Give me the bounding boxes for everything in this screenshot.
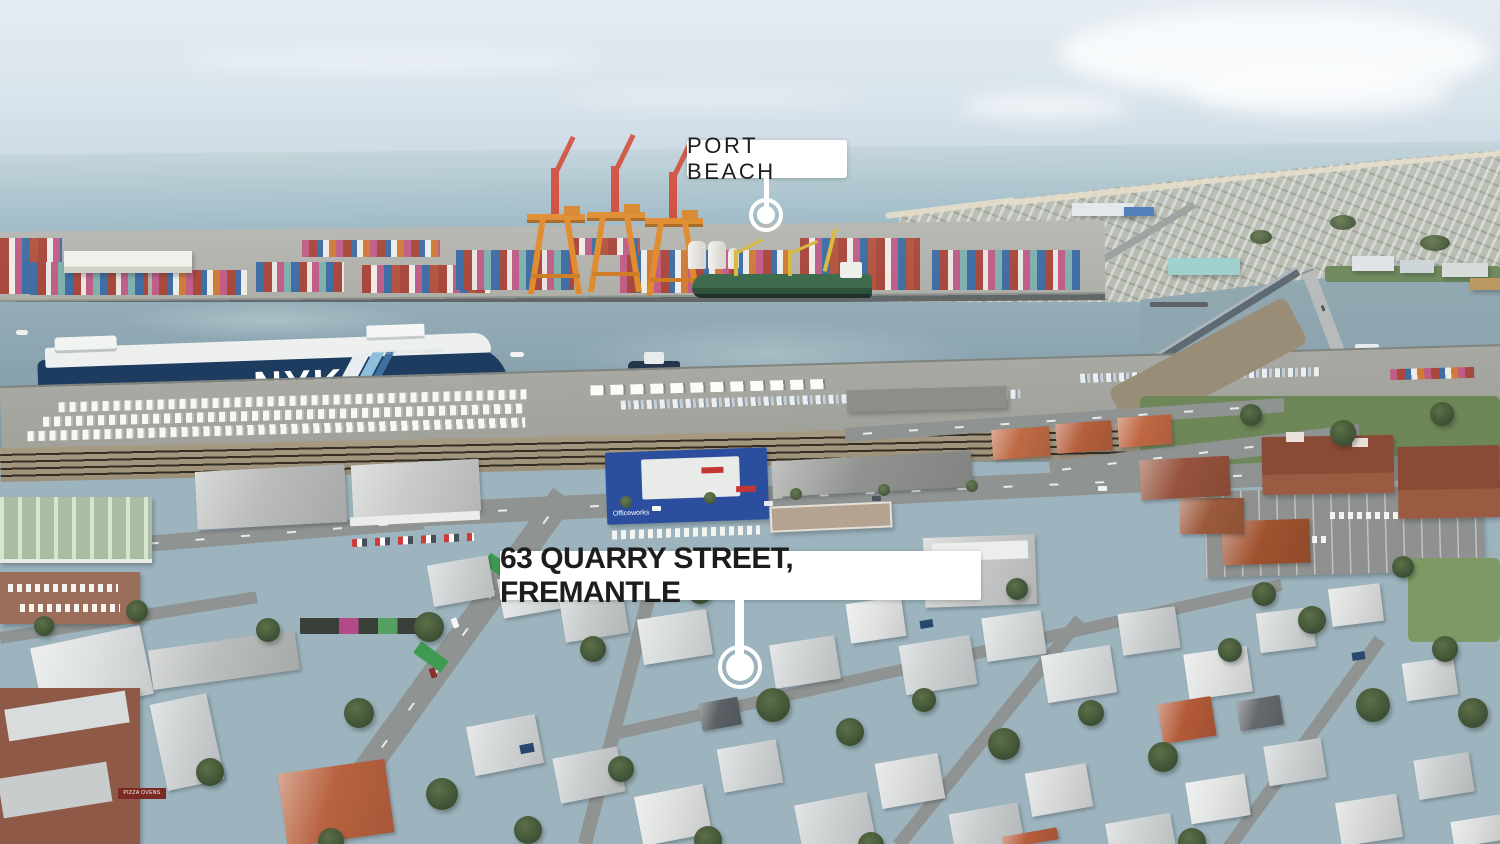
tree	[344, 698, 374, 728]
lawn	[1408, 558, 1500, 642]
tree	[514, 816, 542, 844]
tree	[1330, 215, 1356, 230]
property-marker-dot	[726, 653, 754, 681]
port-beach-label: PORT BEACH	[687, 140, 847, 178]
parked-car-row	[612, 525, 760, 539]
house-roof	[981, 610, 1047, 662]
container-stack	[256, 262, 344, 292]
officeworks-sign: Officeworks	[613, 509, 650, 517]
house-roof	[1402, 657, 1459, 702]
service-station-canopy	[769, 501, 892, 532]
median-tree	[704, 492, 716, 504]
median-tree	[790, 488, 802, 500]
aerial-photo: NYK LINE PROMETHEUS LEADER	[0, 0, 1500, 844]
tree	[1392, 556, 1414, 578]
graffiti-wall	[300, 618, 430, 634]
container-stack	[302, 240, 440, 257]
warehouse-aqua	[1168, 258, 1240, 275]
tree	[1458, 698, 1488, 728]
tree	[1006, 578, 1028, 600]
house-roof	[1185, 774, 1251, 825]
house-roof	[1041, 645, 1118, 703]
cloud	[180, 50, 600, 72]
tree	[34, 616, 54, 636]
house-roof	[698, 697, 742, 732]
red-banner	[701, 467, 723, 474]
median-tree	[966, 480, 978, 492]
car	[652, 506, 661, 511]
median-tree	[620, 496, 632, 508]
tree	[414, 612, 444, 642]
tree	[988, 728, 1020, 760]
tree	[426, 778, 458, 810]
green-cargo-ship	[692, 258, 872, 302]
house-roof	[1117, 606, 1180, 656]
car	[1098, 486, 1107, 491]
tree	[1252, 582, 1276, 606]
cloud	[560, 90, 860, 106]
parked-car-row	[1330, 512, 1400, 519]
tree	[580, 636, 606, 662]
roof-plant	[641, 456, 740, 499]
small-boat	[16, 330, 28, 335]
tree	[1330, 420, 1356, 446]
container-stack	[152, 270, 247, 295]
warehouse	[195, 464, 348, 530]
car-dealership	[351, 459, 482, 518]
shop-roof	[4, 691, 130, 742]
house-roof	[717, 739, 784, 793]
house-roof	[1157, 696, 1217, 744]
tree	[608, 756, 634, 782]
median-tree	[878, 484, 890, 496]
tree	[1250, 230, 1272, 244]
house-roof	[1105, 813, 1177, 844]
house-roof	[1025, 763, 1094, 817]
parked-car-row	[8, 584, 118, 592]
cottage-roof	[1117, 414, 1173, 448]
parked-car-row	[20, 604, 120, 612]
car	[872, 496, 881, 501]
officeworks-building: Officeworks	[605, 447, 769, 525]
heritage-building	[1262, 435, 1395, 495]
red-banner	[736, 486, 756, 493]
container-stack	[932, 250, 1080, 290]
tree	[1148, 742, 1178, 772]
tree	[1078, 700, 1104, 726]
tree	[126, 600, 148, 622]
car-cluster-colorful	[1390, 367, 1474, 380]
brick-warehouse	[1139, 456, 1231, 501]
tree	[256, 618, 280, 642]
riverside-apartment	[1470, 278, 1500, 290]
house-roof	[899, 635, 978, 696]
tree	[1218, 638, 1242, 662]
house-roof	[1328, 583, 1384, 627]
house-roof	[1236, 695, 1284, 732]
tree	[694, 826, 722, 844]
tree	[1356, 688, 1390, 722]
heritage-gable	[1352, 438, 1368, 447]
apartment-block	[1124, 207, 1154, 216]
heritage-gable	[1286, 432, 1304, 442]
heritage-building	[1397, 445, 1500, 519]
dealership-car-row	[352, 533, 474, 547]
tree	[1298, 606, 1326, 634]
riverside-apartment	[1400, 260, 1434, 273]
riverside-apartment	[1352, 256, 1394, 271]
tree	[1178, 828, 1206, 844]
tree	[836, 718, 864, 746]
house-roof	[1450, 814, 1500, 844]
house-roof	[637, 609, 713, 665]
house-roof	[1335, 793, 1403, 844]
cottage-roof	[1055, 420, 1113, 454]
wharf-shed	[846, 386, 1007, 412]
house-roof	[1263, 738, 1327, 787]
house-roof	[1413, 752, 1475, 800]
tree	[912, 688, 936, 712]
shop-roof	[0, 762, 112, 819]
cloud	[1190, 66, 1450, 116]
tree	[1430, 402, 1454, 426]
green-roof-building	[0, 497, 152, 563]
parked-bus-row	[590, 379, 830, 396]
property-label: 63 QUARRY STREET, FREMANTLE	[500, 551, 981, 600]
riverside-apartment	[1442, 263, 1488, 277]
solar-panels	[919, 619, 933, 629]
tree	[1240, 404, 1262, 426]
brick-shops-building: PIZZA OVENS	[0, 688, 140, 844]
tree	[196, 758, 224, 786]
shops-row	[148, 630, 300, 690]
port-beach-marker-dot	[757, 206, 775, 224]
jetty	[1150, 302, 1208, 307]
heritage-cottage	[1180, 498, 1244, 534]
cloud	[960, 92, 1130, 120]
car	[764, 501, 773, 506]
brick-carpark	[0, 572, 140, 624]
tree	[1420, 235, 1450, 251]
small-boat	[510, 352, 524, 357]
port-warehouse	[64, 251, 192, 273]
car	[1321, 305, 1326, 312]
cottage-roof	[991, 426, 1051, 460]
tree	[1432, 636, 1458, 662]
property-stem	[735, 600, 744, 656]
tree	[756, 688, 790, 722]
pizza-ovens-sign: PIZZA OVENS	[118, 788, 166, 799]
